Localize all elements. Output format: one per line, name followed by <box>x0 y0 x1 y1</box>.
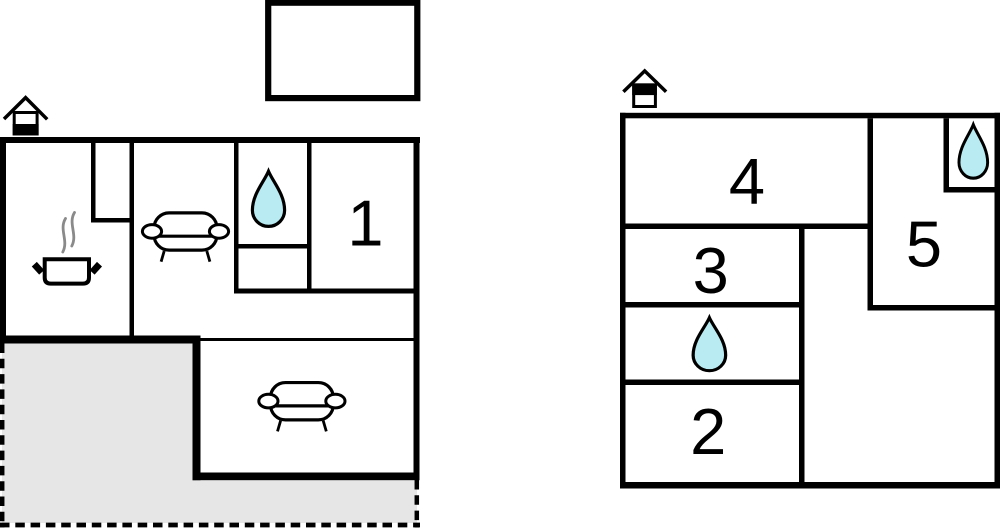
svg-text:1: 1 <box>347 187 383 260</box>
svg-text:2: 2 <box>690 395 726 468</box>
svg-text:4: 4 <box>729 145 765 218</box>
svg-text:3: 3 <box>693 234 729 307</box>
svg-text:5: 5 <box>906 207 942 280</box>
